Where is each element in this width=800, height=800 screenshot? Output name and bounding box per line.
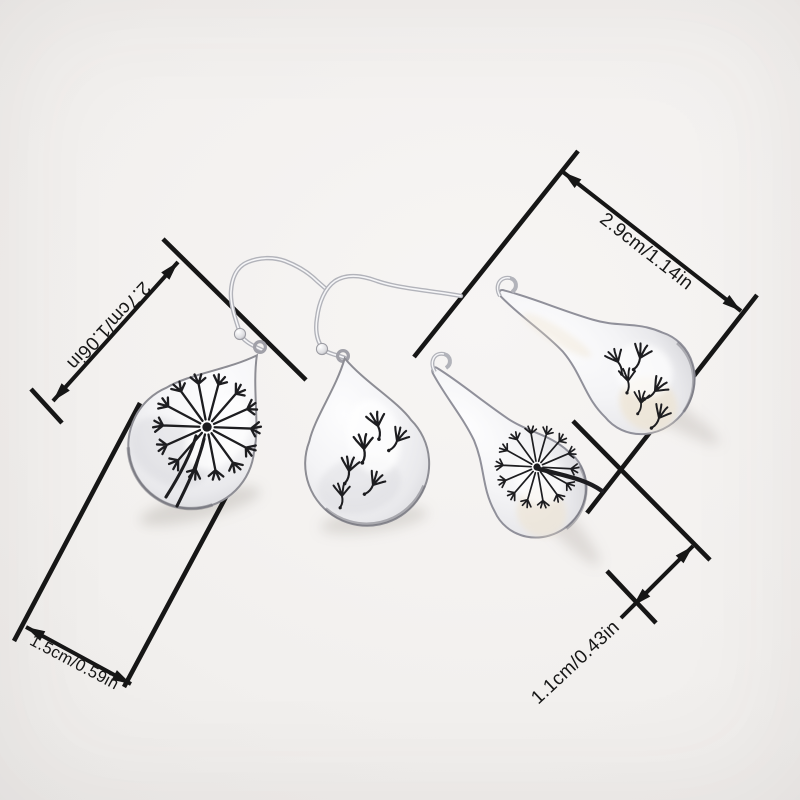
measure-line	[563, 172, 741, 311]
ear-wires	[231, 258, 461, 361]
product-image: 2.9cm/1.14in 2.7cm/1.06in 1.5cm/0.59in 1…	[0, 0, 800, 800]
dimension-bottom-right	[573, 421, 710, 623]
ear-wire-left	[231, 258, 325, 352]
extension-line	[14, 403, 140, 641]
ear-wire-middle	[316, 276, 461, 361]
